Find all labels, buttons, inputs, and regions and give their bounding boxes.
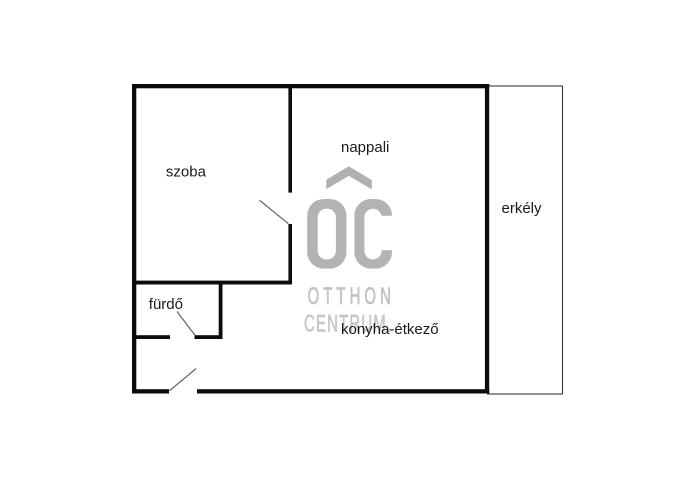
svg-text:szoba: szoba <box>166 163 207 180</box>
svg-text:nappali: nappali <box>341 139 389 156</box>
svg-text:erkély: erkély <box>502 200 543 217</box>
svg-text:OTTHON: OTTHON <box>308 284 395 310</box>
svg-text:fürdő: fürdő <box>149 296 183 313</box>
svg-text:konyha-étkező: konyha-étkező <box>341 321 439 338</box>
